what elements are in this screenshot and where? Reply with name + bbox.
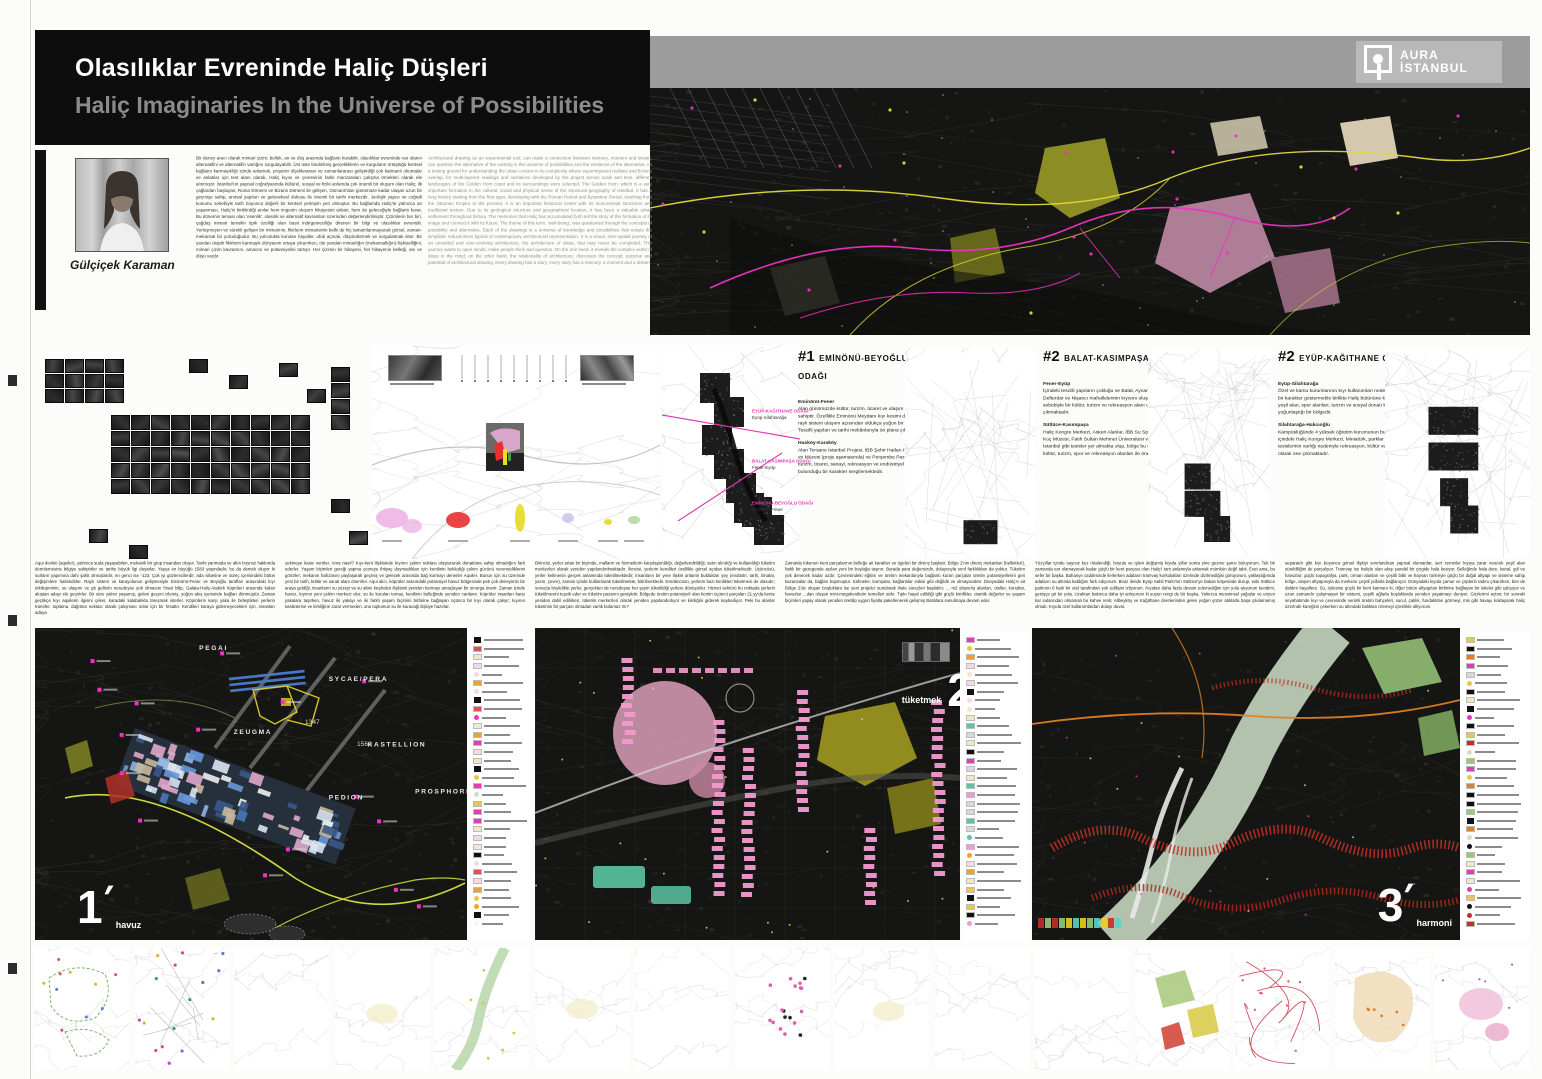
left-accent-bar: [35, 150, 46, 310]
legend-item: [471, 662, 531, 671]
poster-title-turkish: Olasılıklar Evreninde Haliç Düşleri: [75, 54, 488, 83]
legend-item: [1464, 911, 1530, 920]
montage-thumbnail: [350, 532, 367, 544]
legend-label-line: [484, 785, 526, 787]
legend-label-line: [484, 803, 506, 805]
legend-item: [964, 731, 1028, 740]
legend-label-line: [484, 768, 519, 770]
legend-label-line: [484, 699, 520, 701]
legend-label-line: [484, 846, 506, 848]
montage-thumbnail: [332, 384, 349, 397]
legend-item: [1464, 645, 1530, 654]
photo-caption-line: [390, 383, 434, 385]
legend-swatch: [474, 861, 479, 866]
montage-thumbnail: [46, 360, 63, 372]
legend-item: [1464, 722, 1530, 731]
legend-label-line: [1477, 665, 1508, 667]
montage-thumbnail: [292, 432, 309, 445]
legend-swatch: [1467, 715, 1472, 720]
legend-swatch: [474, 655, 481, 659]
legend-label-line: [482, 897, 511, 899]
legend-item: [471, 894, 531, 903]
montage-thumbnail: [232, 448, 249, 461]
legend-swatch: [474, 870, 481, 874]
legend-item: [471, 920, 531, 929]
legend-item: [964, 791, 1028, 800]
legend-swatch: [1467, 681, 1472, 686]
legend-label-line: [482, 717, 506, 719]
legend-label-line: [1477, 794, 1519, 796]
masterplan-map: [650, 88, 1530, 335]
svg-text:SYCAE/PERA: SYCAE/PERA: [329, 676, 388, 683]
legend-label-line: [977, 914, 1015, 916]
montage-thumbnail: [192, 448, 209, 461]
legend-item: [471, 834, 531, 843]
legend-item: [964, 816, 1028, 825]
focus-map-2: [1148, 348, 1270, 558]
legend-item: [471, 653, 531, 662]
aura-istanbul-logo: AURAİSTANBUL: [1356, 41, 1502, 83]
essay-text: Aqui devleti (aquiler), yalnızca suda ya…: [35, 560, 275, 616]
legend-label-line: [1477, 854, 1495, 856]
sketch-tile-10: [935, 948, 1029, 1070]
legend-label-line: [977, 906, 1000, 908]
legend-item: [471, 877, 531, 886]
legend-label-line: [482, 923, 503, 925]
satellite-crop: [486, 423, 524, 471]
legend-item: [964, 774, 1028, 783]
montage-thumbnail: [292, 448, 309, 461]
sketch-tile-2: [135, 948, 229, 1070]
montage-thumbnail: [46, 375, 63, 387]
legend-item: [1464, 782, 1530, 791]
essay-band: Aqui devleti (aquiler), yalnızca suda ya…: [0, 560, 1542, 626]
legend-label-line: [977, 803, 1020, 805]
legend-swatch: [1467, 724, 1474, 728]
legend-swatch: [474, 904, 479, 909]
legend-label-line: [975, 854, 1014, 856]
legend-label-line: [484, 639, 523, 641]
legend-item: [1464, 739, 1530, 748]
montage-thumbnail: [86, 360, 103, 372]
map-2-tuketmek: tüketmek 2′: [535, 628, 960, 940]
sketch-tile-1: [35, 948, 129, 1070]
legend-label-line: [1477, 811, 1518, 813]
legend-swatch: [474, 766, 481, 772]
legend-label-line: [484, 837, 506, 839]
phase-blob-row: [372, 500, 660, 556]
svg-text:ZEUGMA: ZEUGMA: [234, 729, 272, 736]
essay-text: Zamanla tükenen kent parçalarının belleğ…: [785, 560, 1025, 604]
legend-item: [471, 808, 531, 817]
legend-item: [471, 679, 531, 688]
legend-item: [1464, 748, 1530, 757]
legend-label-line: [484, 708, 522, 710]
legend-label-line: [1477, 708, 1514, 710]
essay-column-3: Birincisi, yerler artan bir biçimde, mal…: [535, 560, 775, 626]
sketch-tile-14: [1335, 948, 1429, 1070]
legend-swatch: [474, 750, 481, 754]
montage-thumbnail: [132, 432, 149, 445]
focus-map-1: [905, 348, 1035, 558]
legend-item: [1464, 799, 1530, 808]
legend-label-line: [977, 760, 1001, 762]
legend-item: [1464, 670, 1530, 679]
legend-item: [471, 791, 531, 800]
legend-item: [1464, 842, 1530, 851]
legend-swatch: [967, 716, 974, 720]
montage-thumbnail: [112, 432, 129, 445]
legend-swatch: [1467, 844, 1472, 849]
legend-swatch: [1467, 741, 1474, 745]
legend-swatch: [1467, 698, 1474, 702]
montage-thumbnail: [252, 448, 269, 461]
legend-item: [1464, 774, 1530, 783]
aura-logo-icon: [1364, 45, 1392, 73]
legend-item: [1464, 696, 1530, 705]
legend-label-line: [1477, 828, 1513, 830]
legend-label-line: [484, 725, 520, 727]
legend-item: [1464, 808, 1530, 817]
legend-swatch: [967, 845, 974, 849]
legend-label-line: [977, 880, 1021, 882]
legend-label-line: [977, 725, 1009, 727]
legend-item: [471, 756, 531, 765]
legend-item: [1464, 653, 1530, 662]
map-1-legend: [471, 632, 531, 942]
montage-thumbnail: [232, 416, 249, 429]
legend-label-line: [977, 820, 1015, 822]
legend-swatch: [474, 707, 481, 711]
legend-label-line: [1475, 717, 1494, 719]
montage-thumbnail: [308, 390, 325, 402]
montage-thumbnail: [90, 530, 107, 542]
legend-label-line: [977, 682, 1018, 684]
montage-thumbnail: [172, 432, 189, 445]
legend-swatch: [1467, 862, 1474, 866]
legend-item: [471, 739, 531, 748]
map-2-caption: tüketmek 2′: [902, 664, 960, 713]
legend-swatch: [474, 664, 481, 668]
montage-thumbnail: [112, 480, 129, 493]
legend-swatch: [1467, 706, 1474, 712]
svg-text:PEGAI: PEGAI: [199, 645, 228, 652]
montage-thumbnail: [112, 448, 129, 461]
montage-thumbnail: [212, 448, 229, 461]
montage-thumbnail: [292, 480, 309, 493]
legend-swatch: [1467, 853, 1474, 857]
legend-swatch: [967, 853, 972, 858]
legend-label-line: [1475, 777, 1507, 779]
montage-thumbnail: [66, 375, 83, 387]
legend-item: [964, 894, 1028, 903]
legend-swatch: [474, 792, 479, 797]
goldenhorn-mosaic-panel: [662, 345, 800, 559]
legend-swatch: [474, 827, 481, 831]
legend-label-line: [975, 699, 1000, 701]
montage-thumbnail: [46, 390, 63, 402]
essay-text: çekmeye karar verirler. Ama nasıl? Kıyı-…: [285, 560, 525, 610]
legend-label-line: [1477, 674, 1501, 676]
legend-item: [471, 868, 531, 877]
legend-label-line: [484, 656, 509, 658]
montage-thumbnail: [252, 480, 269, 493]
legend-label-line: [1477, 760, 1516, 762]
legend-item: [964, 696, 1028, 705]
legend-item: [964, 670, 1028, 679]
montage-thumbnail: [66, 390, 83, 402]
legend-label-line: [977, 828, 999, 830]
legend-swatch: [1467, 904, 1472, 909]
legend-swatch: [474, 836, 481, 840]
legend-item: [1464, 894, 1530, 903]
legend-label-line: [977, 785, 1016, 787]
legend-swatch: [474, 810, 481, 814]
montage-thumbnail: [106, 360, 123, 372]
legend-label-line: [484, 820, 527, 822]
montage-thumbnail: [132, 464, 149, 477]
legend-label-line: [484, 760, 511, 762]
montage-thumbnail: [212, 416, 229, 429]
legend-label-line: [1475, 914, 1500, 916]
legend-label-line: [1477, 923, 1515, 925]
montage-thumbnail: [252, 464, 269, 477]
legend-label-line: [977, 889, 1004, 891]
legend-label-line: [1477, 880, 1520, 882]
legend-label-line: [977, 811, 1018, 813]
legend-swatch: [967, 802, 974, 806]
section-number: #1: [798, 348, 815, 365]
legend-swatch: [474, 784, 481, 788]
legend-swatch: [1467, 802, 1474, 806]
essay-column-2: çekmeye karar verirler. Ama nasıl? Kıyı-…: [285, 560, 525, 626]
legend-swatch: [474, 715, 479, 720]
legend-swatch: [967, 793, 974, 797]
legend-item: [964, 877, 1028, 886]
montage-thumbnail: [152, 480, 169, 493]
essay-column-1: Aqui devleti (aquiler), yalnızca suda ya…: [35, 560, 275, 626]
legend-item: [964, 851, 1028, 860]
legend-label-line: [482, 863, 512, 865]
legend-item: [1464, 920, 1530, 929]
legend-item: [964, 765, 1028, 774]
legend-label-line: [1477, 648, 1512, 650]
legend-item: [964, 748, 1028, 757]
legend-item: [964, 679, 1028, 688]
legend-swatch: [1467, 759, 1474, 763]
montage-thumbnail: [212, 480, 229, 493]
legend-swatch: [1467, 818, 1474, 824]
legend-swatch: [967, 913, 974, 917]
legend-item: [964, 842, 1028, 851]
legend-item: [964, 636, 1028, 645]
legend-item: [964, 705, 1028, 714]
legend-item: [964, 645, 1028, 654]
montage-thumbnail: [152, 464, 169, 477]
intro-text-turkish: Bir deney aracı olarak mimari çizim; bel…: [196, 155, 422, 335]
legend-item: [964, 825, 1028, 834]
montage-thumbnail: [172, 464, 189, 477]
poster-page: Olasılıklar Evreninde Haliç Düşleri Hali…: [0, 0, 1542, 1079]
montage-thumbnail: [192, 464, 209, 477]
legend-item: [1464, 851, 1530, 860]
legend-label-line: [977, 794, 1015, 796]
map-1-caption: 1′ havuz: [77, 881, 141, 930]
legend-label-line: [1477, 725, 1514, 727]
legend-item: [964, 653, 1028, 662]
legend-swatch: [474, 759, 481, 763]
montage-thumbnail: [252, 432, 269, 445]
legend-swatch: [1467, 750, 1472, 755]
montage-thumbnail: [232, 464, 249, 477]
legend-item: [471, 645, 531, 654]
montage-thumbnail: [332, 500, 349, 512]
legend-item: [471, 799, 531, 808]
legend-item: [1464, 834, 1530, 843]
legend-swatch: [967, 835, 972, 840]
legend-swatch: [1467, 913, 1472, 918]
legend-item: [964, 885, 1028, 894]
svg-text:1560: 1560: [357, 741, 372, 748]
montage-thumbnail: [252, 416, 269, 429]
intro-text-english: Architectural drawing as an experimental…: [428, 155, 652, 335]
montage-thumbnail: [172, 448, 189, 461]
legend-item: [1464, 791, 1530, 800]
montage-thumbnail: [292, 464, 309, 477]
legend-swatch: [474, 681, 481, 685]
legend-swatch: [967, 638, 974, 642]
legend-label-line: [1475, 751, 1495, 753]
legend-swatch: [967, 655, 974, 659]
montage-thumbnail: [130, 546, 147, 558]
sketch-tile-9: [835, 948, 929, 1070]
legend-item: [471, 688, 531, 697]
legend-label-line: [1477, 785, 1514, 787]
legend-swatch: [1467, 767, 1474, 771]
montage-thumbnail: [152, 448, 169, 461]
legend-label-line: [977, 897, 1011, 899]
legend-label-line: [977, 863, 1017, 865]
montage-thumbnail: [132, 416, 149, 429]
legend-item: [471, 851, 531, 860]
svg-text:PEDION: PEDION: [329, 795, 364, 802]
legend-item: [1464, 868, 1530, 877]
montage-thumbnail: [106, 375, 123, 387]
focus-map-3: [1385, 348, 1530, 558]
legend-swatch: [967, 776, 974, 780]
legend-item: [1464, 859, 1530, 868]
legend-label-line: [1477, 863, 1505, 865]
legend-swatch: [474, 896, 479, 901]
legend-item: [471, 885, 531, 894]
legend-item: [471, 774, 531, 783]
montage-thumbnail: [272, 432, 289, 445]
legend-label-line: [975, 837, 1003, 839]
legend-swatch: [967, 646, 972, 651]
legend-swatch: [1467, 655, 1474, 659]
legend-label-line: [1477, 803, 1521, 805]
montage-thumbnail: [152, 416, 169, 429]
legend-item: [1464, 756, 1530, 765]
sketch-tile-11: [1035, 948, 1129, 1070]
legend-item: [471, 859, 531, 868]
legend-item: [1464, 662, 1530, 671]
legend-swatch: [1467, 793, 1474, 797]
legend-swatch: [474, 647, 481, 651]
legend-swatch: [1467, 673, 1474, 677]
legend-swatch: [474, 697, 481, 703]
legend-label-line: [484, 854, 504, 856]
legend-swatch: [967, 827, 974, 831]
legend-swatch: [474, 912, 481, 918]
legend-label-line: [1477, 639, 1504, 641]
legend-item: [1464, 713, 1530, 722]
legend-swatch: [967, 784, 974, 788]
legend-swatch: [474, 741, 481, 745]
legend-swatch: [1467, 690, 1474, 694]
photo-caption-line: [582, 383, 626, 385]
legend-label-line: [484, 880, 511, 882]
legend-label-line: [1477, 656, 1500, 658]
montage-thumbnail: [152, 432, 169, 445]
bottom-sketch-row: [0, 948, 1542, 1074]
montage-thumbnail: [172, 480, 189, 493]
legend-item: [1464, 688, 1530, 697]
legend-swatch: [474, 845, 481, 849]
legend-label-line: [977, 665, 1009, 667]
timeline-ticks: [456, 351, 576, 391]
legend-swatch: [967, 698, 972, 703]
legend-label-line: [1475, 906, 1511, 908]
montage-thumbnail: [272, 416, 289, 429]
legend-item: [471, 696, 531, 705]
legend-item: [471, 713, 531, 722]
legend-item: [964, 911, 1028, 920]
montage-thumbnail: [212, 464, 229, 477]
legend-swatch: [474, 853, 481, 857]
legend-swatch: [967, 767, 974, 771]
legend-item: [1464, 731, 1530, 740]
legend-label-line: [1477, 871, 1502, 873]
map-2-legend: [964, 632, 1028, 942]
legend-label-line: [484, 914, 509, 916]
map-3-caption: 3′ harmoni: [1378, 879, 1452, 928]
legend-label-line: [1477, 742, 1519, 744]
legend-swatch: [474, 724, 481, 728]
legend-label-line: [977, 691, 1004, 693]
essay-column-6: separatör gibi kıyı boyunca görsel ilişk…: [1285, 560, 1525, 626]
legend-swatch: [1467, 879, 1474, 883]
sketch-tile-15: [1435, 948, 1529, 1070]
legend-label-line: [484, 742, 522, 744]
author-name: Gülçiçek Karaman: [70, 258, 190, 272]
legend-swatch: [1467, 638, 1474, 642]
poster-title-english: Haliç Imaginaries In the Universe of Pos…: [75, 92, 604, 119]
legend-swatch: [967, 664, 974, 668]
legend-item: [471, 765, 531, 774]
legend-item: [1464, 825, 1530, 834]
legend-swatch: [1467, 784, 1474, 788]
legend-item: [471, 731, 531, 740]
legend-swatch: [474, 819, 481, 823]
essay-column-4: Zamanla tükenen kent parçalarının belleğ…: [785, 560, 1025, 626]
legend-item: [964, 739, 1028, 748]
legend-item: [964, 688, 1028, 697]
legend-swatch: [1467, 647, 1474, 651]
legend-item: [471, 825, 531, 834]
legend-swatch: [967, 707, 972, 712]
legend-label-line: [484, 648, 524, 650]
